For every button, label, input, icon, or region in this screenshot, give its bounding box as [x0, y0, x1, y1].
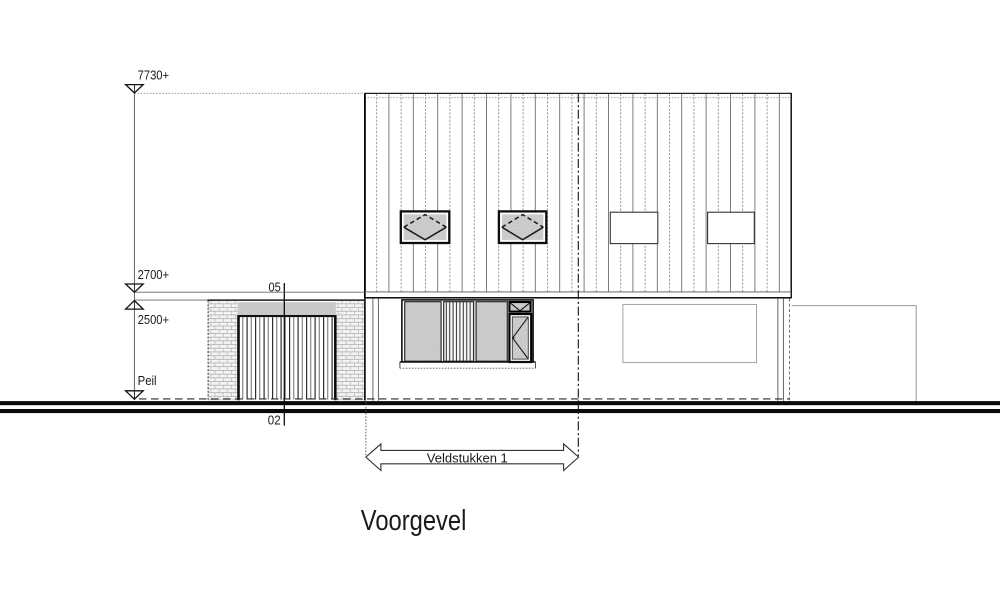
- svg-text:Peil: Peil: [138, 373, 157, 388]
- svg-text:02: 02: [268, 412, 281, 427]
- svg-text:7730+: 7730+: [138, 68, 170, 83]
- svg-text:2700+: 2700+: [138, 267, 170, 282]
- svg-text:Veldstukken 1: Veldstukken 1: [427, 451, 508, 465]
- svg-text:2500+: 2500+: [138, 312, 170, 327]
- svg-text:Voorgevel: Voorgevel: [361, 505, 467, 537]
